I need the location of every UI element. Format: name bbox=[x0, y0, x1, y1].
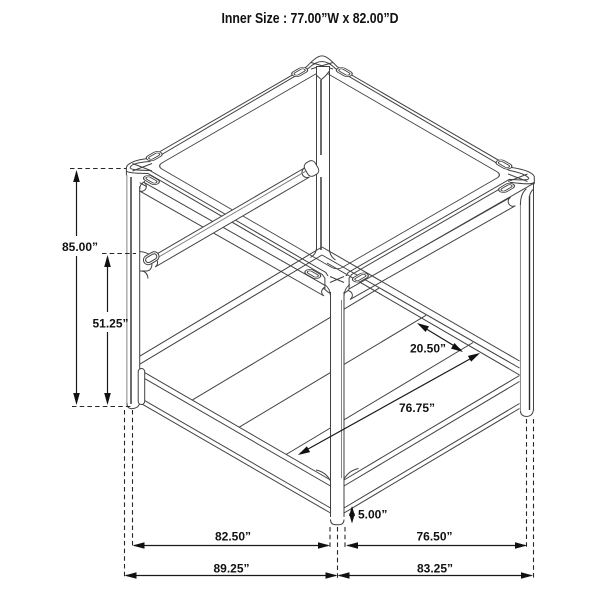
svg-text:20.50”: 20.50” bbox=[410, 342, 446, 356]
svg-text:51.25”: 51.25” bbox=[92, 317, 128, 331]
svg-text:89.25”: 89.25” bbox=[213, 562, 249, 576]
svg-text:76.75”: 76.75” bbox=[399, 401, 435, 415]
svg-text:83.25”: 83.25” bbox=[417, 562, 453, 576]
svg-text:76.50”: 76.50” bbox=[416, 530, 452, 544]
svg-text:Inner Size : 77.00”W x 82.00”D: Inner Size : 77.00”W x 82.00”D bbox=[222, 10, 399, 27]
svg-text:5.00”: 5.00” bbox=[358, 508, 387, 522]
svg-text:82.50”: 82.50” bbox=[215, 530, 251, 544]
svg-text:85.00”: 85.00” bbox=[62, 240, 98, 254]
